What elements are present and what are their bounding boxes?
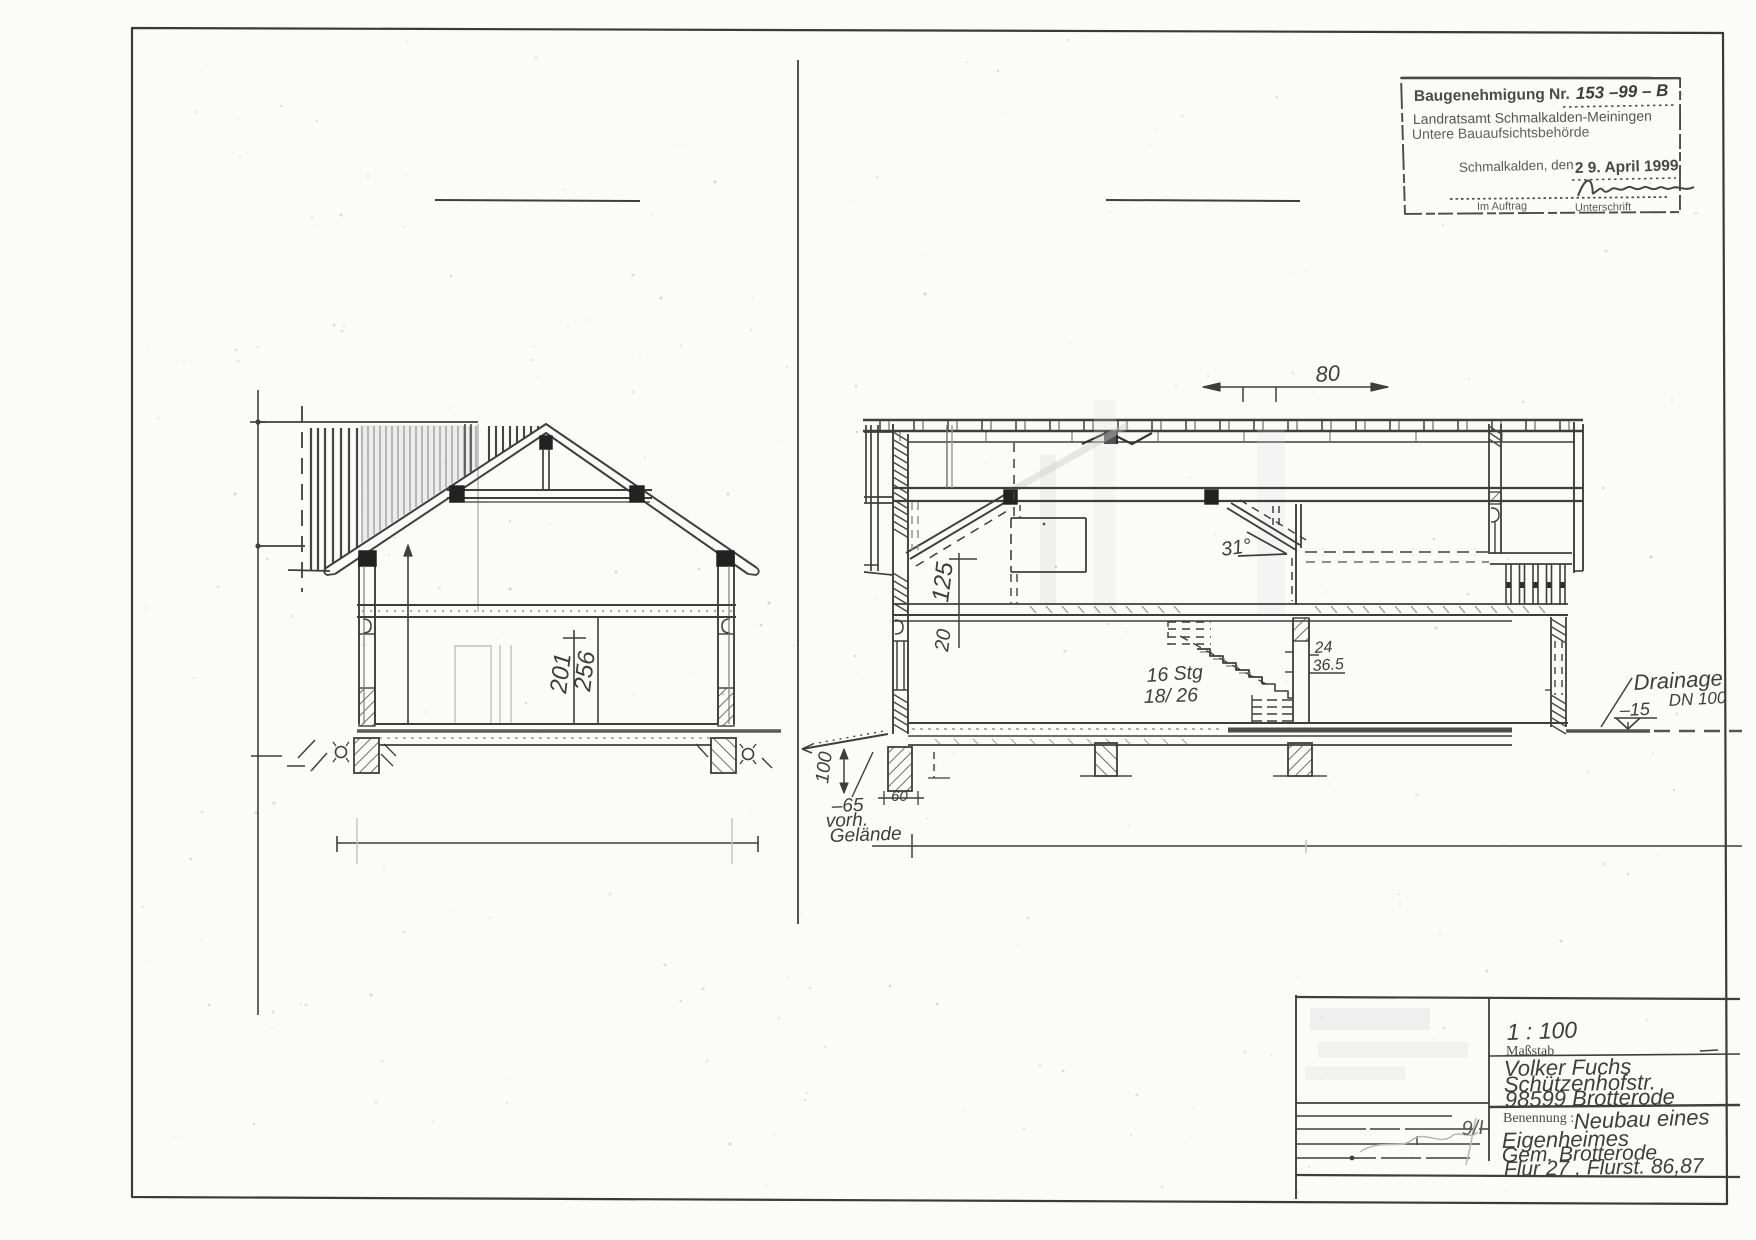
- svg-text:Im Auftrag: Im Auftrag: [1477, 200, 1527, 213]
- svg-text:80: 80: [1315, 360, 1342, 387]
- svg-text:Schmalkalden, den: Schmalkalden, den: [1459, 157, 1574, 175]
- svg-text:–15: –15: [1618, 699, 1651, 720]
- svg-text:Untere Bauaufsichtsbehörde: Untere Bauaufsichtsbehörde: [1412, 124, 1590, 142]
- svg-text:256: 256: [569, 649, 601, 694]
- svg-text:24: 24: [1313, 639, 1333, 657]
- svg-text:Unterschrift: Unterschrift: [1575, 201, 1631, 214]
- svg-text:Gelände: Gelände: [829, 824, 902, 847]
- svg-text:9/I: 9/I: [1461, 1117, 1485, 1140]
- svg-text:153 –99 – B: 153 –99 – B: [1575, 81, 1668, 103]
- svg-text:60: 60: [891, 788, 908, 805]
- svg-text:DN 100: DN 100: [1668, 688, 1727, 710]
- svg-text:Flur 27 , Flurst. 86,87: Flur 27 , Flurst. 86,87: [1504, 1154, 1705, 1181]
- svg-text:125: 125: [927, 560, 959, 604]
- svg-text:16 Stg: 16 Stg: [1146, 661, 1204, 687]
- svg-text:36.5: 36.5: [1312, 656, 1344, 675]
- svg-text:20: 20: [931, 628, 956, 654]
- svg-text:Baugenehmigung Nr.: Baugenehmigung Nr.: [1414, 86, 1570, 105]
- svg-text:18/ 26: 18/ 26: [1143, 684, 1198, 708]
- svg-text:2 9. April 1999: 2 9. April 1999: [1575, 157, 1679, 177]
- svg-text:31°: 31°: [1220, 535, 1253, 561]
- svg-text:100: 100: [812, 750, 837, 784]
- svg-text:Benennung :: Benennung :: [1503, 1111, 1574, 1126]
- svg-text:1 : 100: 1 : 100: [1506, 1017, 1577, 1045]
